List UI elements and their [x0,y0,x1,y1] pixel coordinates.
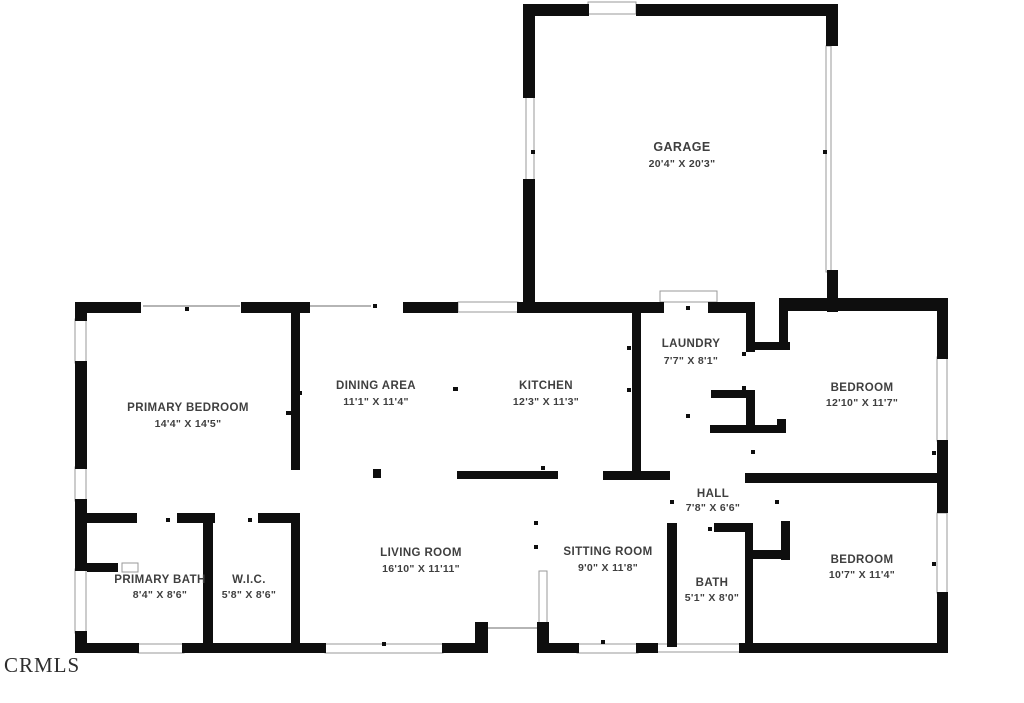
room-label-bath: BATH 5'1" X 8'0" [685,577,739,604]
wall [87,563,118,572]
wall [87,513,137,523]
room-name-bath: BATH [696,577,729,589]
room-name-bedroom-bottom: BEDROOM [831,554,894,566]
room-dims-bedroom-bottom: 10'7" X 11'4" [829,569,895,581]
window [138,644,184,653]
wall [291,311,300,470]
wall [442,643,476,653]
room-label-laundry: LAUNDRY 7'7" X 8'1" [662,338,721,367]
room-name-primary-bath: PRIMARY BATH [114,574,205,586]
wall [632,302,641,478]
wall [636,4,838,16]
wall [937,298,948,359]
room-dims-primary-bath: 8'4" X 8'6" [133,589,187,601]
wall [739,643,948,653]
door-marker [297,391,302,395]
door-marker [81,411,85,415]
room-label-dining-area: DINING AREA 11'1" X 11'4" [336,380,416,408]
room-name-primary-bedroom: PRIMARY BEDROOM [127,402,249,414]
room-dims-bedroom-top: 12'10" X 11'7" [826,397,898,409]
door-marker [382,642,386,646]
room-name-dining-area: DINING AREA [336,380,416,392]
room-dims-wic: 5'8" X 8'6" [222,589,276,601]
wall [781,521,790,560]
door-marker [534,521,538,525]
wall [475,622,488,653]
window [937,357,947,441]
crmls-watermark: CRMLS [4,653,80,678]
wall [523,4,535,98]
wall [537,622,549,653]
entry-threshold-line [488,627,537,629]
wall [636,643,658,653]
room-name-kitchen: KITCHEN [519,380,573,392]
door-marker [742,386,746,390]
room-dims-hall: 7'8" X 6'6" [686,502,740,514]
wall [75,499,87,571]
floor-plan: GARAGE 20'4" X 20'3" PRIMARY BEDROOM 14'… [0,0,1024,703]
wall [753,550,785,559]
wall [745,473,937,483]
door-marker [627,388,631,392]
door-marker [601,640,605,644]
wall [548,643,579,653]
room-name-garage: GARAGE [653,140,710,154]
room-label-garage: GARAGE 20'4" X 20'3" [649,140,716,170]
floor-plan-page: GARAGE 20'4" X 20'3" PRIMARY BEDROOM 14'… [0,0,1024,703]
room-dims-bath: 5'1" X 8'0" [685,592,739,604]
room-name-hall: HALL [697,488,729,500]
room-name-laundry: LAUNDRY [662,338,721,350]
wall [779,298,788,350]
wall [75,643,139,653]
wall [780,298,947,311]
door-marker [670,500,674,504]
door-marker [185,307,189,311]
window [588,2,636,14]
wall [403,302,458,313]
window [458,302,518,312]
door-marker [932,451,936,455]
door-marker [751,450,755,454]
door-marker [534,545,538,549]
door-marker [286,411,291,415]
window [937,513,947,593]
door-marker [541,466,545,470]
wall [291,513,300,653]
door-marker [686,414,690,418]
wall [711,390,753,398]
wall [373,469,381,478]
window-line [310,305,371,307]
door-marker [627,346,631,350]
fixture [122,563,138,572]
door-marker [823,150,827,154]
room-label-bedroom-bottom: BEDROOM 10'7" X 11'4" [829,554,895,581]
room-label-bedroom-top: BEDROOM 12'10" X 11'7" [826,382,898,409]
room-dims-kitchen: 12'3" X 11'3" [513,396,579,408]
door-marker [373,304,377,308]
room-label-primary-bath: PRIMARY BATH 8'4" X 8'6" [114,574,205,601]
door-marker [248,518,252,522]
room-label-wic: W.I.C. 5'8" X 8'6" [222,574,276,601]
window [526,97,534,180]
room-name-sitting-room: SITTING ROOM [563,546,652,558]
room-name-living-room: LIVING ROOM [380,547,462,559]
room-dims-garage: 20'4" X 20'3" [649,158,716,170]
wall [523,179,535,305]
wall [667,523,677,647]
room-label-living-room: LIVING ROOM 16'10" X 11'11" [380,547,462,575]
room-dims-dining-area: 11'1" X 11'4" [343,396,409,408]
wall [517,302,664,313]
window-line [143,305,240,307]
glass-partition [539,571,547,623]
window [577,644,638,653]
window [75,467,86,501]
room-labels: GARAGE 20'4" X 20'3" PRIMARY BEDROOM 14'… [114,140,898,604]
room-dims-laundry: 7'7" X 8'1" [664,355,718,367]
door-marker [531,150,535,154]
room-dims-primary-bedroom: 14'4" X 14'5" [155,418,222,430]
door-marker [742,352,746,356]
door-marker [932,562,936,566]
window [75,569,86,633]
room-label-kitchen: KITCHEN 12'3" X 11'3" [513,380,579,408]
door-marker [166,518,170,522]
room-label-hall: HALL 7'8" X 6'6" [686,488,740,514]
room-dims-sitting-room: 9'0" X 11'8" [578,562,638,574]
wall [826,4,838,46]
room-name-bedroom-top: BEDROOM [831,382,894,394]
wall [937,440,948,513]
wall [457,471,558,479]
room-label-sitting-room: SITTING ROOM 9'0" X 11'8" [563,546,652,574]
wall [75,302,87,321]
room-dims-living-room: 16'10" X 11'11" [382,563,460,575]
wall [523,4,589,16]
interior-walls [87,298,937,653]
wall [258,513,300,523]
step [660,291,717,302]
door-marker [453,387,458,391]
window [826,46,831,272]
wall [777,419,786,433]
room-label-primary-bedroom: PRIMARY BEDROOM 14'4" X 14'5" [127,402,249,430]
room-name-wic: W.I.C. [232,574,266,586]
door-marker [708,527,712,531]
door-marker [686,306,690,310]
window [75,319,86,363]
wall [745,523,753,647]
door-marker [775,500,779,504]
wall [710,425,786,433]
